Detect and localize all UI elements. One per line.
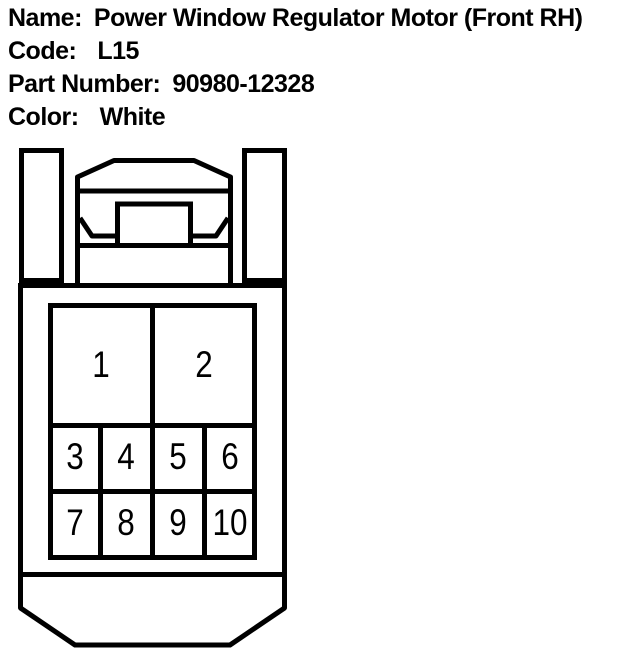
latch-tab [118,204,191,246]
pin-cell-4: 4 [117,436,134,478]
pin-cell-3: 3 [66,436,83,478]
pin-cell-5: 5 [169,436,186,478]
left-ear [22,151,62,281]
pin-cell-2: 2 [195,344,212,386]
pin-cell-1: 1 [92,344,109,386]
pin-cell-7: 7 [66,502,83,544]
latch-bracket-left [80,218,117,236]
pin-cell-6: 6 [221,436,238,478]
connector-pinout-page: Name: Power Window Regulator Motor (Fron… [0,0,624,662]
right-ear [245,151,285,281]
latch-housing [78,161,231,288]
pin-cell-10: 10 [213,502,248,544]
connector-outline-svg [0,0,624,662]
latch-bracket-right [191,218,228,236]
bottom-wedge [21,575,285,646]
connector-diagram: 1 2 3 4 5 6 7 8 9 10 [0,0,624,662]
pin-cell-8: 8 [117,502,134,544]
pin-cell-9: 9 [169,502,186,544]
